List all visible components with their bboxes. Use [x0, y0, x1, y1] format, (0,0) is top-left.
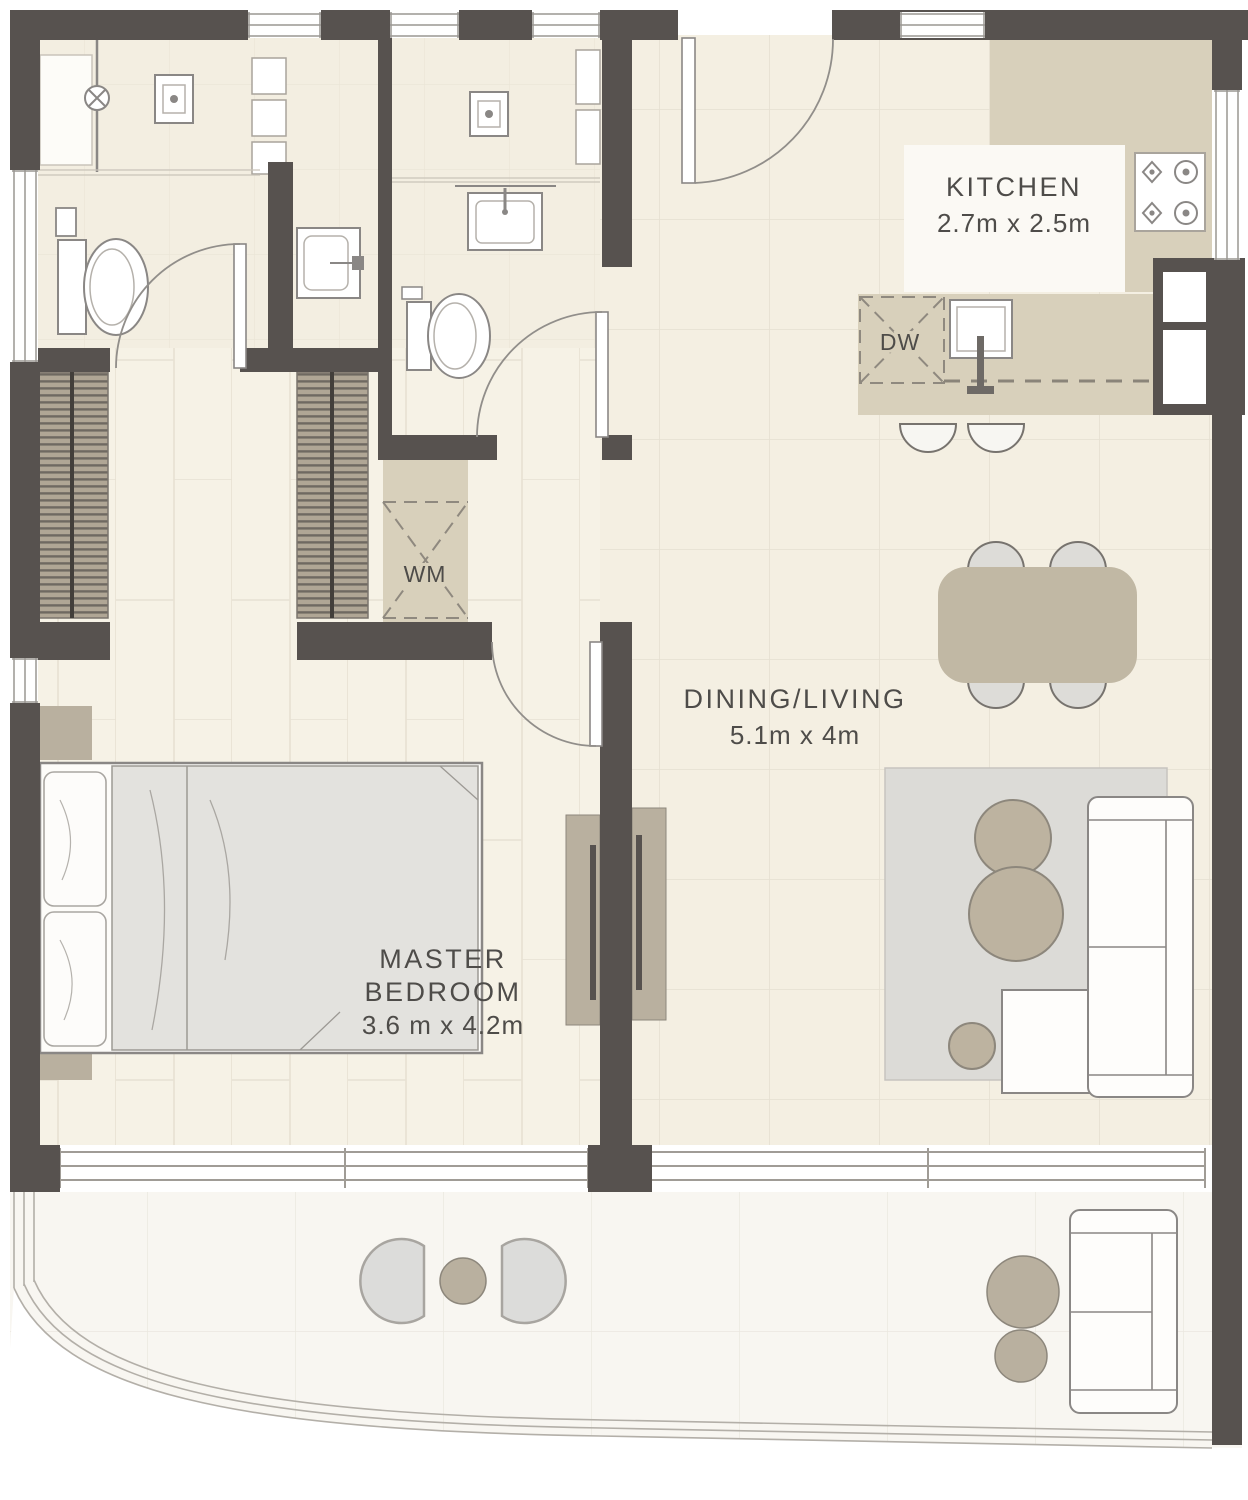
balcony-sofa	[1070, 1210, 1177, 1413]
floor-plan: KITCHEN 2.7m x 2.5m DINING/LIVING 5.1m x…	[0, 0, 1248, 1500]
side-table	[949, 1023, 995, 1069]
faucet-icon	[977, 336, 984, 392]
flush-plate	[56, 208, 76, 236]
window	[248, 12, 321, 38]
shower-control	[155, 75, 193, 123]
window	[12, 658, 38, 703]
shower-head-icon	[85, 86, 109, 110]
tv-unit-living	[632, 808, 666, 1020]
nightstand	[37, 706, 92, 760]
vanity-sink	[297, 228, 364, 298]
window	[12, 170, 38, 362]
coffee-table	[975, 800, 1051, 876]
tv-unit-bedroom	[566, 815, 600, 1025]
ottoman	[1002, 990, 1090, 1093]
shower-control	[470, 92, 508, 136]
balcony-sliding-doors	[10, 1145, 1212, 1192]
dining-living-label: DINING/LIVING	[683, 684, 906, 714]
tv-icon	[590, 845, 596, 1000]
dining-table	[938, 567, 1137, 683]
kitchen-label: KITCHEN	[946, 172, 1082, 202]
washing-machine-label: WM	[404, 561, 447, 587]
interior-wall	[268, 162, 293, 348]
bath-shelf	[252, 58, 286, 174]
pillow	[44, 772, 106, 906]
coffee-table	[969, 867, 1063, 961]
washing-machine	[383, 440, 468, 622]
faucet-icon	[352, 256, 364, 270]
wall-stub	[588, 1145, 652, 1192]
vanity-sink	[455, 186, 556, 250]
dining-living-dims: 5.1m x 4m	[730, 720, 860, 750]
balcony-table	[440, 1258, 486, 1304]
window	[390, 12, 459, 38]
master-bedroom-label-line2: BEDROOM	[364, 977, 521, 1007]
window	[1214, 90, 1240, 260]
dishwasher-label: DW	[880, 329, 920, 355]
window	[532, 12, 600, 38]
tv-icon	[636, 835, 642, 990]
wardrobe-left	[37, 372, 108, 618]
kitchen-dims: 2.7m x 2.5m	[937, 208, 1091, 238]
pillow	[44, 912, 106, 1046]
stove	[1135, 153, 1205, 231]
master-bedroom-dims: 3.6 m x 4.2m	[362, 1010, 524, 1040]
floor-plan-page: KITCHEN 2.7m x 2.5m DINING/LIVING 5.1m x…	[0, 0, 1248, 1500]
flush-plate	[402, 287, 422, 299]
master-bedroom-label-line1: MASTER	[379, 944, 507, 974]
shower-tray	[40, 55, 92, 165]
wardrobe-right	[297, 372, 368, 618]
wall-stub	[10, 1145, 60, 1192]
duvet	[112, 766, 478, 1050]
window	[900, 12, 985, 38]
balcony-round-table	[995, 1330, 1047, 1382]
balcony-round-table	[987, 1256, 1059, 1328]
